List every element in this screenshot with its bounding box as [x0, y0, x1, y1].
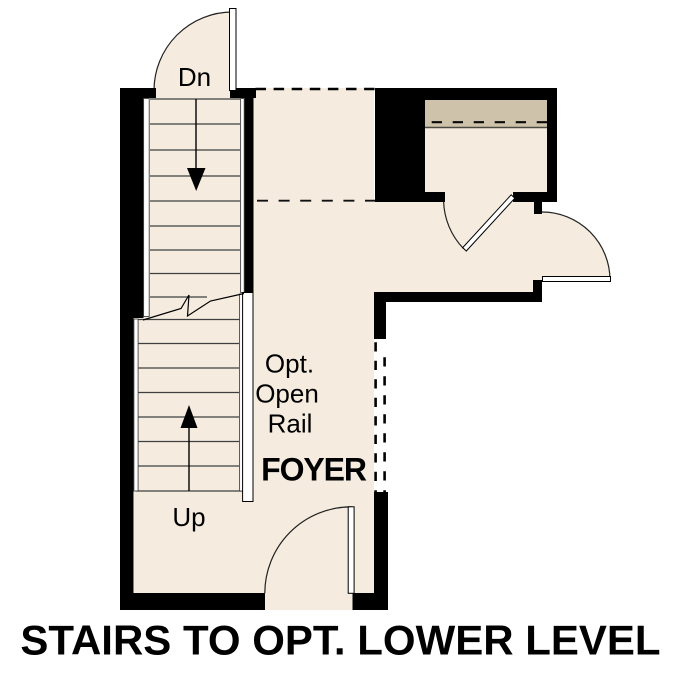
svg-text:Opt.: Opt.: [265, 349, 314, 379]
svg-text:Up: Up: [172, 502, 205, 532]
svg-text:FOYER: FOYER: [261, 452, 367, 488]
svg-text:Open: Open: [255, 379, 319, 409]
svg-text:Dn: Dn: [178, 62, 211, 92]
svg-text:Rail: Rail: [268, 409, 313, 439]
svg-text:STAIRS TO OPT. LOWER LEVEL: STAIRS TO OPT. LOWER LEVEL: [20, 617, 660, 664]
